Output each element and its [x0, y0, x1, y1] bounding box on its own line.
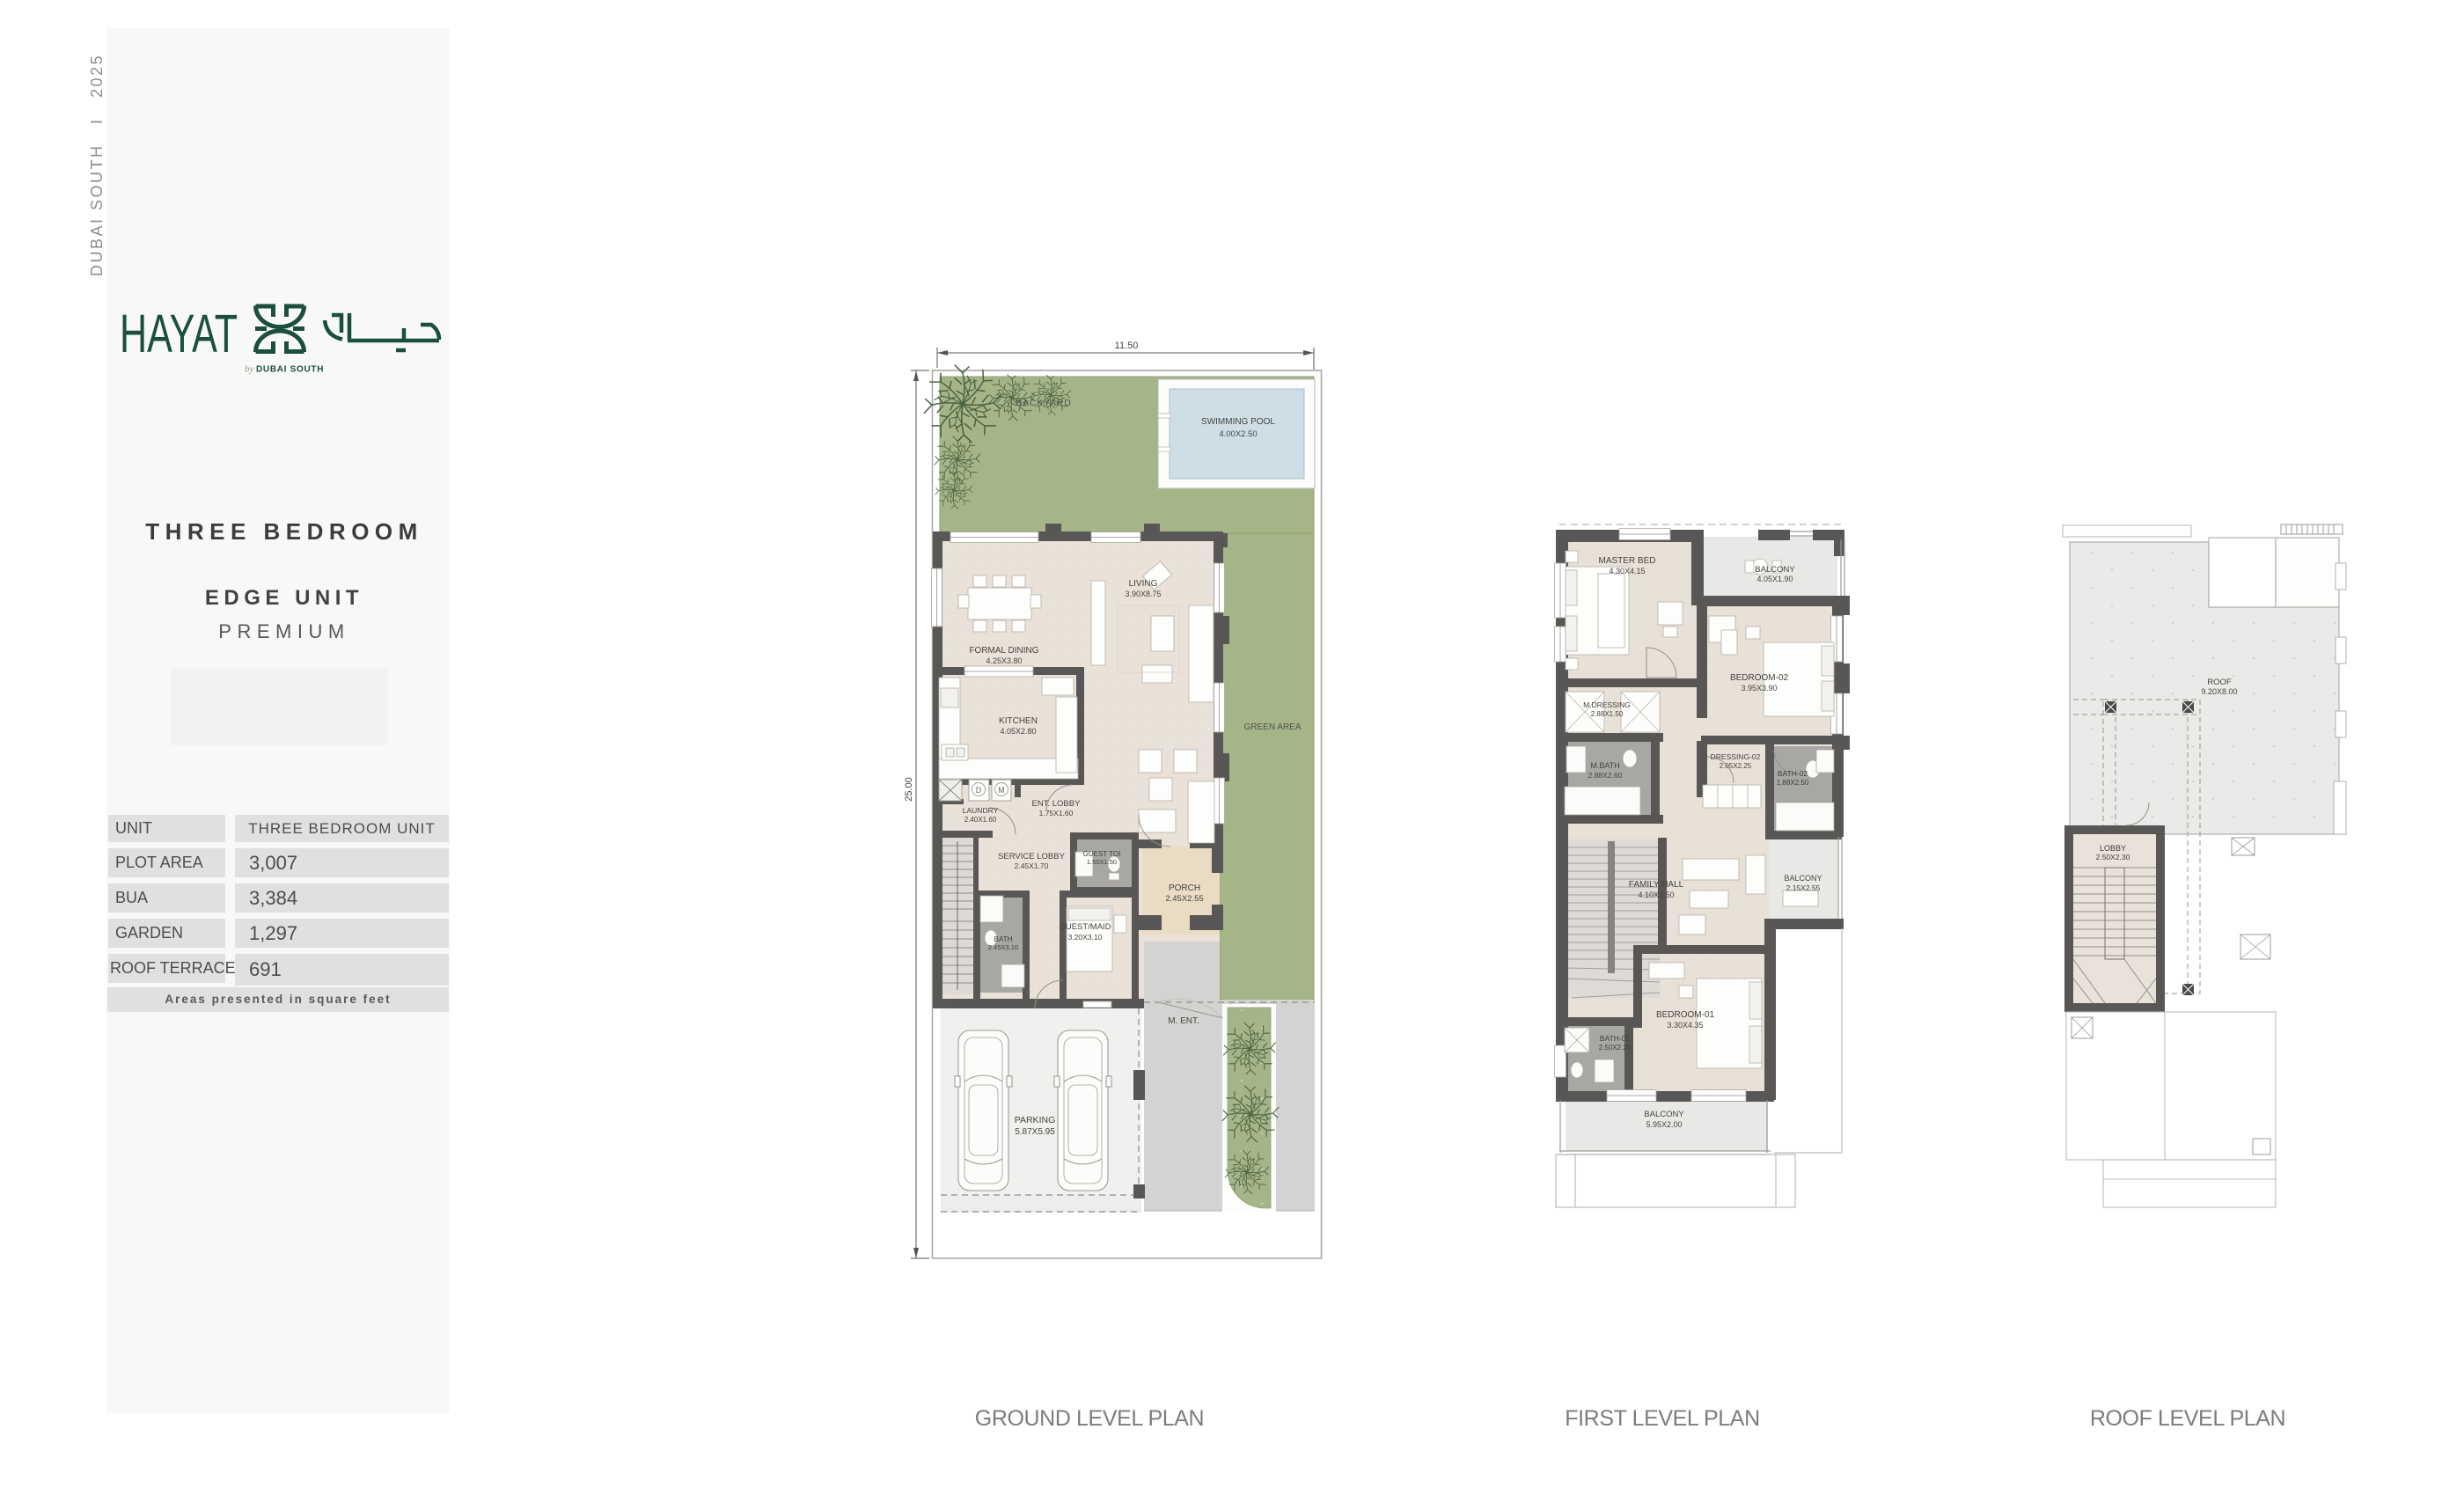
- svg-text:BACKYARD: BACKYARD: [1016, 398, 1071, 408]
- svg-text:FORMAL DINING: FORMAL DINING: [969, 646, 1038, 656]
- svg-text:2.15X2.55: 2.15X2.55: [1786, 883, 1821, 892]
- svg-text:2.88X1.50: 2.88X1.50: [1591, 710, 1624, 718]
- svg-text:FAMILY HALL: FAMILY HALL: [1629, 880, 1684, 890]
- svg-text:BATH-01: BATH-01: [1600, 1034, 1631, 1043]
- svg-text:2.45X1.70: 2.45X1.70: [1015, 861, 1049, 870]
- svg-text:BALCONY: BALCONY: [1644, 1110, 1684, 1119]
- svg-text:LAUNDRY: LAUNDRY: [963, 806, 999, 815]
- svg-text:M: M: [998, 786, 1005, 795]
- svg-text:3.30X4.35: 3.30X4.35: [1667, 1021, 1703, 1030]
- svg-text:4.25X3.80: 4.25X3.80: [986, 656, 1022, 665]
- svg-text:M.DRESSING: M.DRESSING: [1583, 700, 1631, 709]
- svg-text:4.05X1.90: 4.05X1.90: [1756, 575, 1793, 583]
- svg-text:SWIMMING POOL: SWIMMING POOL: [1201, 417, 1275, 427]
- svg-text:3.95X3.90: 3.95X3.90: [1741, 684, 1777, 693]
- svg-text:4.00X2.50: 4.00X2.50: [1219, 429, 1257, 439]
- svg-text:3.90X8.75: 3.90X8.75: [1125, 590, 1161, 598]
- svg-text:5.87X5.95: 5.87X5.95: [1015, 1127, 1055, 1137]
- svg-text:5.95X2.00: 5.95X2.00: [1646, 1120, 1682, 1129]
- svg-text:ENT. LOBBY: ENT. LOBBY: [1032, 799, 1082, 809]
- svg-text:DRESSING-02: DRESSING-02: [1711, 752, 1761, 761]
- svg-text:BEDROOM-02: BEDROOM-02: [1730, 673, 1789, 683]
- svg-text:LOBBY: LOBBY: [2100, 844, 2126, 853]
- svg-text:BALCONY: BALCONY: [1755, 565, 1795, 575]
- svg-text:GREEN AREA: GREEN AREA: [1243, 722, 1301, 732]
- svg-text:2.50X2.20: 2.50X2.20: [1599, 1044, 1632, 1052]
- svg-text:2.40X1.60: 2.40X1.60: [964, 816, 997, 824]
- svg-text:D: D: [976, 786, 982, 795]
- svg-text:2.45X2.55: 2.45X2.55: [1165, 894, 1203, 904]
- svg-text:2.50X2.30: 2.50X2.30: [2096, 853, 2130, 861]
- svg-text:4.10X3.50: 4.10X3.50: [1638, 891, 1674, 899]
- svg-text:4.05X2.80: 4.05X2.80: [1000, 727, 1036, 736]
- svg-text:1.88X2.50: 1.88X2.50: [1777, 779, 1809, 787]
- svg-text:2.45X3.10: 2.45X3.10: [988, 943, 1018, 951]
- svg-text:PORCH: PORCH: [1169, 883, 1200, 893]
- svg-text:1.50X1.50: 1.50X1.50: [1087, 858, 1117, 866]
- svg-text:PARKING: PARKING: [1015, 1115, 1055, 1125]
- svg-text:GUEST/MAID: GUEST/MAID: [1059, 922, 1111, 932]
- svg-text:2.88X2.60: 2.88X2.60: [1588, 771, 1623, 780]
- svg-text:GUEST TOI: GUEST TOI: [1083, 850, 1121, 858]
- svg-text:SERVICE LOBBY: SERVICE LOBBY: [998, 852, 1066, 861]
- svg-text:ROOF: ROOF: [2207, 678, 2232, 687]
- svg-text:BALCONY: BALCONY: [1784, 874, 1822, 883]
- svg-text:3.20X3.10: 3.20X3.10: [1068, 933, 1103, 942]
- svg-text:LIVING: LIVING: [1129, 579, 1158, 589]
- svg-text:1.75X1.60: 1.75X1.60: [1039, 809, 1074, 817]
- svg-text:BATH: BATH: [994, 935, 1013, 943]
- svg-text:25.00: 25.00: [904, 777, 914, 802]
- svg-text:KITCHEN: KITCHEN: [999, 716, 1038, 726]
- svg-text:BEDROOM-01: BEDROOM-01: [1656, 1010, 1715, 1020]
- svg-text:M. ENT.: M. ENT.: [1168, 1016, 1199, 1026]
- svg-text:BATH-02: BATH-02: [1778, 769, 1808, 778]
- svg-text:4.30X4.15: 4.30X4.15: [1609, 567, 1645, 575]
- svg-text:MASTER BED: MASTER BED: [1598, 556, 1655, 566]
- svg-text:2.05X2.25: 2.05X2.25: [1720, 762, 1752, 770]
- svg-text:M.BATH: M.BATH: [1590, 761, 1619, 770]
- svg-text:11.50: 11.50: [1115, 341, 1139, 351]
- svg-text:9.20X8.00: 9.20X8.00: [2201, 687, 2237, 696]
